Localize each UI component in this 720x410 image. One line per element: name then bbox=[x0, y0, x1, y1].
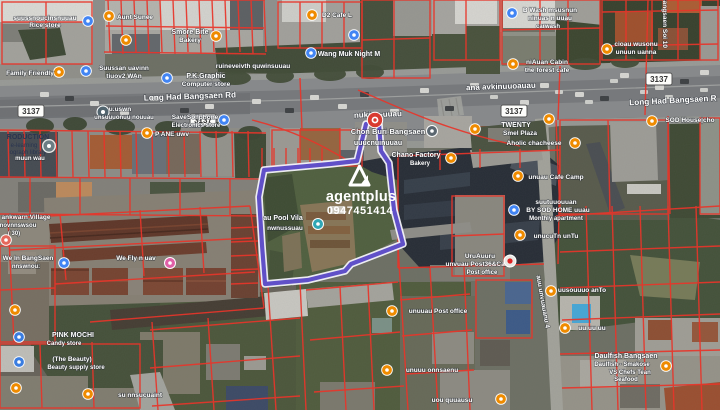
svg-text:UruAuuru: UruAuuru bbox=[465, 253, 495, 260]
svg-text:Smel Plaza: Smel Plaza bbox=[503, 130, 537, 137]
svg-text:the forest cafe: the forest cafe bbox=[525, 67, 570, 74]
svg-text:suussnoucinsnuuau: suussnoucinsnuuau bbox=[13, 15, 76, 22]
svg-text:P.K.Graphic: P.K.Graphic bbox=[186, 73, 225, 80]
svg-text:ankwarn Village: ankwarn Village bbox=[1, 214, 50, 221]
svg-text:0947451414: 0947451414 bbox=[327, 205, 394, 217]
svg-text:su nnsucuaint: su nnsucuaint bbox=[118, 392, 163, 399]
svg-text:BY SOD HOME uuau: BY SOD HOME uuau bbox=[526, 207, 589, 214]
svg-text:uou quuausu: uou quuausu bbox=[432, 397, 473, 404]
svg-text:unuuu onnsaenu: unuuu onnsaenu bbox=[406, 367, 458, 374]
svg-text:unuun uanna: unuun uanna bbox=[616, 49, 657, 56]
svg-text:au Pool Vila: au Pool Vila bbox=[263, 215, 303, 222]
svg-text:e-learning: e-learning bbox=[11, 143, 38, 149]
svg-text:Beauty supply store: Beauty supply store bbox=[47, 365, 105, 371]
svg-text:muun wau: muun wau bbox=[15, 156, 45, 162]
svg-text:cioau wusonu: cioau wusonu bbox=[614, 41, 657, 48]
svg-text:uu uu uu: uu uu uu bbox=[578, 325, 605, 332]
svg-text:unucuTn unTu: unucuTn unTu bbox=[534, 233, 579, 240]
svg-text:B Wash msusnun: B Wash msusnun bbox=[523, 7, 577, 14]
svg-text:(The Beauty): (The Beauty) bbox=[52, 356, 91, 363]
svg-text:Suussan uavinn: Suussan uavinn bbox=[99, 65, 149, 72]
svg-text:PINK MOCHI: PINK MOCHI bbox=[52, 332, 94, 339]
svg-text:ninuas n uuau: ninuas n uuau bbox=[528, 15, 572, 22]
svg-text:We Fly n uav: We Fly n uav bbox=[116, 255, 156, 262]
svg-text:unvuau Post36&Cafe: unvuau Post36&Cafe bbox=[445, 261, 510, 268]
svg-text:u.uswn: u.uswn bbox=[109, 106, 131, 113]
svg-text:Computer store: Computer store bbox=[182, 81, 231, 88]
svg-text:unuau Cafe Camp: unuau Cafe Camp bbox=[528, 174, 583, 181]
svg-text:We In BangSaen: We In BangSaen bbox=[3, 255, 54, 262]
svg-text:unsuuuonuu nouuau: unsuuuonuu nouuau bbox=[94, 115, 154, 121]
svg-text:Aholic chacheese: Aholic chacheese bbox=[507, 140, 562, 147]
svg-text:Aunt Sunee: Aunt Sunee bbox=[117, 14, 153, 21]
svg-text:suutuuouuan: suutuuouuan bbox=[535, 199, 576, 206]
svg-text:SOD House|cho: SOD House|cho bbox=[665, 117, 714, 124]
svg-text:niAuan Cabin: niAuan Cabin bbox=[526, 59, 568, 66]
svg-text:Chano Factory: Chano Factory bbox=[391, 152, 440, 159]
svg-text:nnswnou:: nnswnou: bbox=[12, 264, 40, 270]
svg-text:nwnussuau: nwnussuau bbox=[267, 225, 303, 232]
svg-text:Monthly apartment: Monthly apartment bbox=[529, 216, 583, 222]
svg-text:Seafood: Seafood bbox=[614, 377, 638, 383]
svg-text:Bakery: Bakery bbox=[179, 37, 201, 44]
svg-text:Smore Bite: Smore Bite bbox=[172, 29, 209, 36]
svg-text:Candy store: Candy store bbox=[47, 341, 82, 347]
svg-text:Daulfish - Smakose: Daulfish - Smakose bbox=[594, 362, 650, 368]
svg-text:Daulfish Bangsaen: Daulfish Bangsaen bbox=[594, 353, 657, 360]
svg-text:uuucnuinuuau: uuucnuinuuau bbox=[354, 140, 402, 147]
svg-text:ruineveivth quwinsuuau: ruineveivth quwinsuuau bbox=[216, 63, 290, 70]
svg-text:uusouuuo anTo: uusouuuo anTo bbox=[558, 287, 606, 294]
svg-text:novnnswsou: novnnswsou bbox=[0, 223, 37, 229]
svg-text:Electronics store: Electronics store bbox=[172, 123, 221, 129]
svg-text:3137: 3137 bbox=[505, 107, 523, 116]
svg-text:TWENTY: TWENTY bbox=[501, 122, 531, 129]
svg-text:Chon Buri-Bangsaen: Chon Buri-Bangsaen bbox=[351, 127, 426, 136]
svg-text:D2 Cafe L: D2 Cafe L bbox=[322, 12, 352, 19]
svg-text:3137: 3137 bbox=[22, 107, 40, 116]
svg-text:carwash: carwash bbox=[536, 24, 560, 30]
svg-text:tiuov2 WAn: tiuov2 WAn bbox=[106, 73, 141, 80]
svg-text:Bangsaen Soi 10: Bangsaen Soi 10 bbox=[661, 0, 668, 48]
svg-text:SaveSoilphone: SaveSoilphone bbox=[172, 114, 219, 121]
svg-text:agentplus: agentplus bbox=[326, 189, 396, 205]
svg-text:P ANE uwv: P ANE uwv bbox=[155, 131, 189, 138]
svg-text:VS Chefs Tean: VS Chefs Tean bbox=[609, 370, 651, 376]
svg-text:Bakery: Bakery bbox=[410, 161, 431, 167]
svg-text:RODUCTION: RODUCTION bbox=[7, 134, 49, 141]
svg-text:Wang Muk Night M: Wang Muk Night M bbox=[318, 51, 381, 58]
svg-text:Post office: Post office bbox=[467, 270, 498, 276]
svg-text:unuuau Post office: unuuau Post office bbox=[409, 308, 468, 315]
svg-text:3137: 3137 bbox=[650, 75, 668, 84]
svg-text:Rice store: Rice store bbox=[29, 22, 61, 29]
svg-text:Family Friendly: Family Friendly bbox=[6, 70, 54, 77]
